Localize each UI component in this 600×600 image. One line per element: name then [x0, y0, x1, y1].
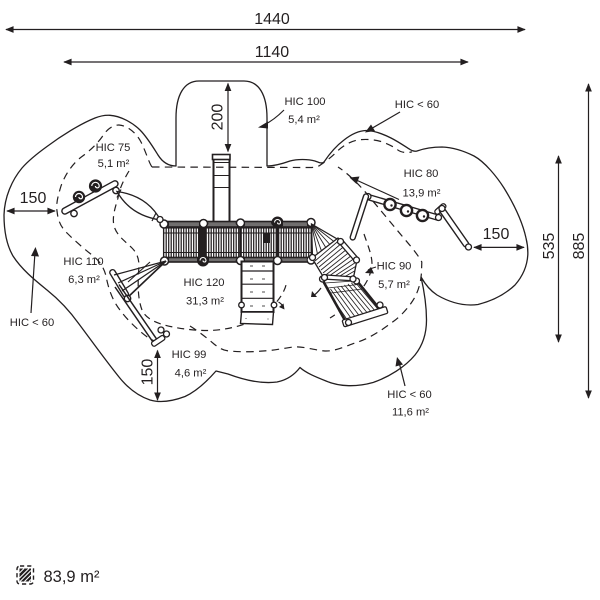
svg-text:200: 200 — [210, 104, 227, 131]
svg-text:885: 885 — [571, 233, 588, 260]
svg-text:31,3 m²: 31,3 m² — [186, 296, 224, 308]
svg-text:150: 150 — [20, 190, 47, 207]
svg-text:13,9 m²: 13,9 m² — [403, 188, 441, 200]
svg-text:HIC 75: HIC 75 — [96, 142, 131, 154]
svg-text:83,9 m²: 83,9 m² — [44, 568, 100, 586]
svg-text:HIC 100: HIC 100 — [284, 96, 325, 108]
svg-text:HIC 80: HIC 80 — [404, 168, 439, 180]
svg-text:HIC 99: HIC 99 — [172, 349, 207, 361]
svg-text:HIC 90: HIC 90 — [377, 261, 412, 273]
svg-text:535: 535 — [541, 233, 558, 260]
svg-text:5,4 m²: 5,4 m² — [288, 114, 320, 126]
svg-text:HIC < 60: HIC < 60 — [395, 99, 439, 111]
svg-text:HIC 120: HIC 120 — [183, 277, 224, 289]
svg-text:5,7 m²: 5,7 m² — [378, 279, 410, 291]
svg-text:6,3 m²: 6,3 m² — [68, 274, 100, 286]
svg-text:4,6 m²: 4,6 m² — [175, 368, 207, 380]
svg-text:HIC < 60: HIC < 60 — [10, 317, 54, 329]
svg-text:1440: 1440 — [254, 11, 290, 28]
svg-text:HIC < 60: HIC < 60 — [387, 389, 431, 401]
svg-text:1140: 1140 — [255, 44, 290, 61]
svg-text:HIC 110: HIC 110 — [63, 256, 103, 268]
svg-text:150: 150 — [140, 359, 157, 386]
svg-text:5,1 m²: 5,1 m² — [98, 158, 130, 170]
svg-text:150: 150 — [483, 226, 510, 243]
svg-text:11,6 m²: 11,6 m² — [392, 407, 429, 419]
